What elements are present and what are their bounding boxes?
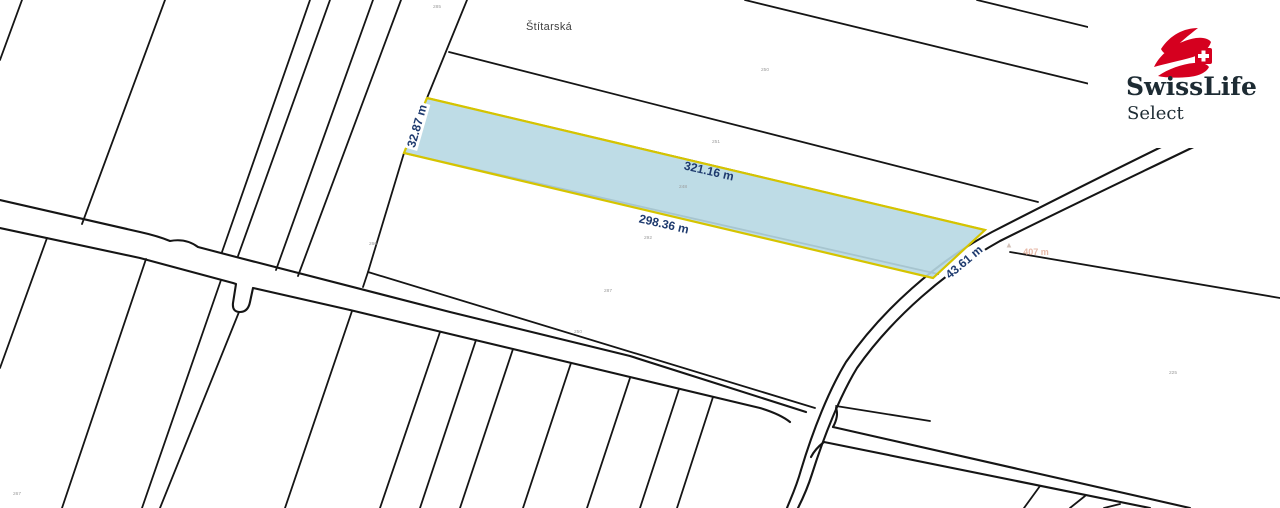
area-note: 407 m [1023, 247, 1049, 257]
parcel-number: 285 [433, 5, 441, 10]
logo-subbrand-text: Select [1127, 103, 1184, 124]
parcel-number: 225 [1169, 371, 1177, 376]
parcel-number: 248 [679, 185, 687, 190]
street-label: Štítarská [526, 21, 572, 33]
swisslife-logo: SwissLife Select [1088, 0, 1280, 148]
parcel-number: 292 [644, 236, 652, 241]
parcel-number: 260 [369, 242, 377, 247]
parcel-number: 287 [604, 289, 612, 294]
cadastral-map: Štítarská 32.87 m 321.16 m 298.36 m 43.6… [0, 0, 1280, 508]
parcel-number: 250 [761, 68, 769, 73]
parcel-number: 250 [574, 330, 582, 335]
highlighted-parcel [404, 98, 985, 278]
parcel-number: 251 [712, 140, 720, 145]
triangle-marker-icon: ▲ [1005, 241, 1013, 250]
logo-brand-text: SwissLife [1126, 72, 1276, 101]
parcel-number: 267 [13, 492, 21, 497]
